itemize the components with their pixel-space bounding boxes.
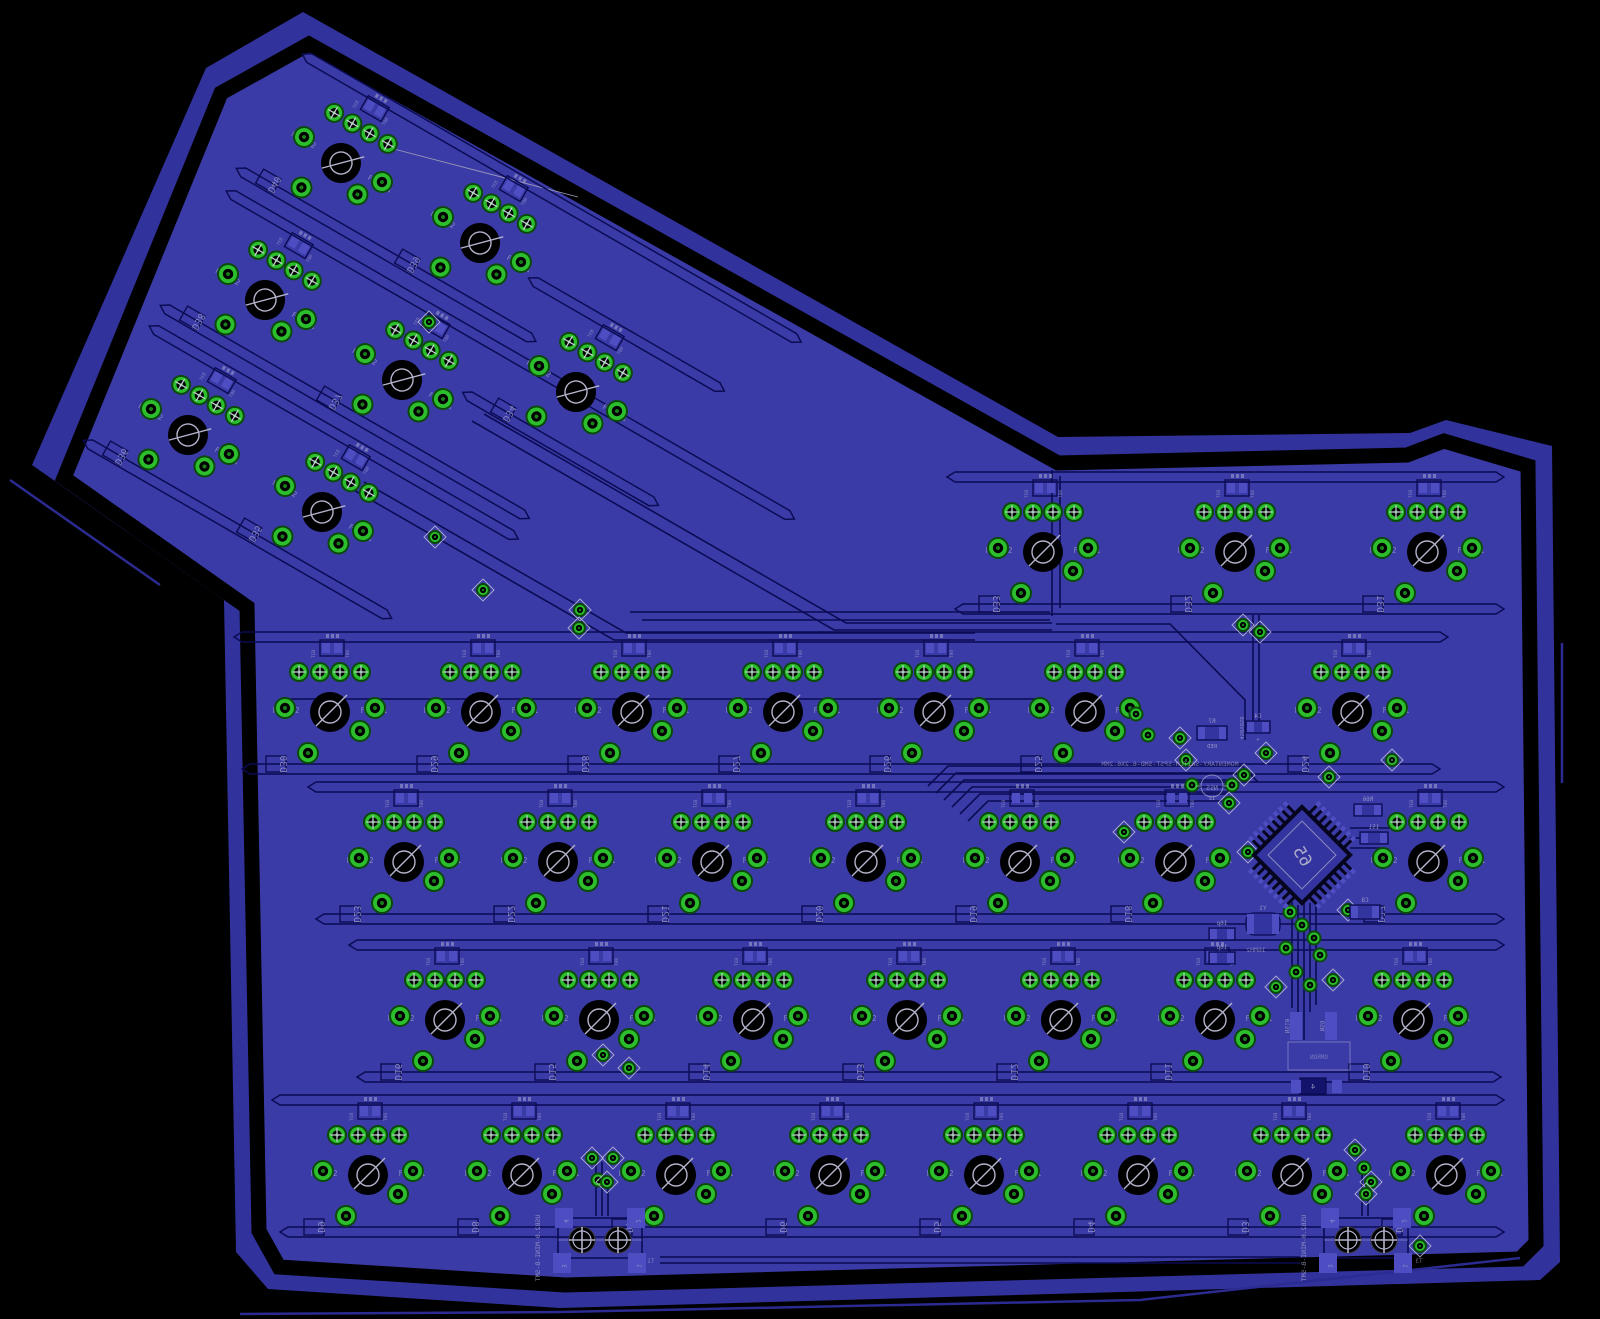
svg-text:D6: D6 [777,1221,788,1233]
svg-text:D32: D32 [1182,595,1193,612]
svg-text:80T: 80T [614,958,620,966]
svg-text:80T: 80T [691,1113,697,1121]
svg-text:80T: 80T [1076,958,1082,966]
svg-text:B3T: B3T [965,1113,971,1121]
svg-text:B3T: B3T [1409,800,1415,808]
svg-text:D26: D26 [881,755,892,772]
svg-text:D10: D10 [1360,1063,1371,1080]
svg-text:16p: 16p [1216,944,1227,951]
svg-text:B3T: B3T [462,650,468,658]
svg-text:D4: D4 [1085,1221,1096,1233]
svg-text:12: 12 [1209,796,1216,802]
svg-text:B3T: B3T [385,800,391,808]
svg-text:B3T: B3T [1001,800,1007,808]
svg-text:B3T: B3T [915,650,921,658]
svg-text:B3T: B3T [1119,1113,1125,1121]
svg-text:B3T: B3T [847,800,853,808]
svg-text:80T: 80T [419,800,425,808]
svg-text:B3T: B3T [1156,800,1162,808]
silkscreen-text: T3 [1415,1258,1423,1265]
svg-text:3: 3 [1326,1264,1333,1268]
svg-text:D23: D23 [351,905,362,922]
svg-text:80T: 80T [537,1113,543,1121]
svg-text:2: 2 [1400,1219,1407,1223]
svg-text:NS10: NS10 [1283,1018,1290,1033]
svg-text:D13: D13 [854,1063,865,1080]
svg-text:80T: 80T [1250,490,1256,498]
svg-text:80T: 80T [573,800,579,808]
svg-text:NS9: NS9 [1318,1020,1325,1031]
svg-text:80T: 80T [999,1113,1005,1121]
svg-text:B3T: B3T [1066,650,1072,658]
svg-text:B3T: B3T [311,650,317,658]
svg-text:D3: D3 [1239,1221,1250,1232]
svg-text:D9: D9 [315,1221,326,1233]
svg-text:D22: D22 [505,905,516,922]
svg-text:MOMENTARY-SWITCH-SPST-SMD-6.2X: MOMENTARY-SWITCH-SPST-SMD-6.2X6.2MM [1101,760,1238,768]
svg-text:80T: 80T [881,800,887,808]
svg-text:D27: D27 [730,755,741,772]
svg-text:D24: D24 [1299,755,1310,772]
svg-text:D29: D29 [428,755,439,772]
svg-text:D25: D25 [1032,755,1043,772]
svg-text:USB2.0-MINI-B-SMT: USB2.0-MINI-B-SMT [534,1215,542,1282]
svg-text:USB2.0-MINI-B-SMT: USB2.0-MINI-B-SMT [1300,1215,1308,1282]
svg-text:B3T: B3T [349,1113,355,1121]
svg-text:B3T: B3T [1273,1113,1279,1121]
svg-text:B3T: B3T [580,958,586,966]
svg-text:D11: D11 [1162,1063,1173,1080]
svg-text:B3T: B3T [1196,958,1202,966]
svg-text:R66: R66 [1362,796,1373,803]
svg-text:D30: D30 [277,755,288,772]
svg-text:80T: 80T [845,1113,851,1121]
svg-text:16MHz: 16MHz [1246,946,1266,954]
svg-text:D20: D20 [813,905,824,922]
svg-text:B3T: B3T [1216,490,1222,498]
svg-text:B3T: B3T [1024,490,1030,498]
svg-text:D21: D21 [659,905,670,922]
svg-text:80T: 80T [460,958,466,966]
svg-text:80T: 80T [1461,1113,1467,1121]
svg-text:D14: D14 [700,1063,711,1080]
svg-text:80T: 80T [798,650,804,658]
svg-text:80T: 80T [383,1113,389,1121]
svg-text:B3T: B3T [539,800,545,808]
svg-text:D31: D31 [1374,595,1385,612]
svg-text:T3: T3 [1415,1258,1423,1265]
svg-text:RED: RED [1207,744,1217,750]
svg-text:D15: D15 [546,1063,557,1080]
silkscreen-text: 450V05B [1238,716,1244,740]
svg-text:D5: D5 [931,1221,942,1232]
svg-text:B3T: B3T [426,958,432,966]
silkscreen-text: 16MHz [1246,946,1266,954]
svg-text:D19: D19 [967,905,978,922]
svg-text:80T: 80T [1035,800,1041,808]
svg-text:80T: 80T [345,650,351,658]
svg-text:80T: 80T [727,800,733,808]
svg-text:2: 2 [634,1219,641,1223]
svg-text:80T: 80T [1443,800,1449,808]
svg-text:4: 4 [1311,1083,1315,1091]
svg-text:80T: 80T [1190,800,1196,808]
svg-text:N55: N55 [1206,784,1218,792]
svg-text:B3T: B3T [693,800,699,808]
svg-text:80T: 80T [1367,650,1373,658]
svg-text:B3T: B3T [764,650,770,658]
svg-text:D8: D8 [469,1221,480,1233]
svg-text:T1: T1 [647,1258,655,1265]
svg-text:C8: C8 [1361,897,1369,904]
svg-text:80T: 80T [1428,958,1434,966]
svg-text:R7: R7 [1208,718,1216,725]
pcb-board: B3T80TD33FXPIN2FXPIN1B3T80TD32FXPIN2FXPI… [0,0,1600,1319]
svg-text:80T: 80T [1100,650,1106,658]
svg-text:1: 1 [1401,1264,1408,1268]
svg-text:D18: D18 [1122,905,1133,922]
svg-text:4: 4 [562,1219,569,1223]
svg-text:80T: 80T [496,650,502,658]
svg-text:B3T: B3T [1394,958,1400,966]
svg-text:80T: 80T [1153,1113,1159,1121]
silkscreen-text: T1 [647,1258,655,1265]
svg-text:80T: 80T [1442,490,1448,498]
svg-text:80T: 80T [1307,1113,1313,1121]
svg-text:80T: 80T [949,650,955,658]
svg-text:D28: D28 [579,755,590,772]
svg-text:3: 3 [560,1264,567,1268]
svg-text:B3T: B3T [1333,650,1339,658]
svg-text:80T: 80T [922,958,928,966]
svg-text:B3T: B3T [811,1113,817,1121]
svg-text:450V05B: 450V05B [1238,716,1244,740]
svg-text:D12: D12 [1008,1063,1019,1080]
svg-text:80T: 80T [647,650,653,658]
svg-text:B3T: B3T [1042,958,1048,966]
svg-text:80T: 80T [1058,490,1064,498]
svg-text:B3T: B3T [1408,490,1414,498]
svg-text:1: 1 [635,1264,642,1268]
pcb-editor-canvas: B3T80TD33FXPIN2FXPIN1B3T80TD32FXPIN2FXPI… [0,0,1600,1319]
silkscreen-text: MOMENTARY-SWITCH-SPST-SMD-6.2X6.2MM [1101,760,1238,768]
svg-text:D33: D33 [990,595,1001,612]
svg-text:OMRON: OMRON [1310,1054,1328,1061]
svg-text:4: 4 [1328,1219,1335,1223]
svg-text:B3T: B3T [734,958,740,966]
svg-text:B3T: B3T [613,650,619,658]
svg-text:B3T: B3T [1427,1113,1433,1121]
svg-text:Y1: Y1 [1259,905,1267,912]
svg-text:80T: 80T [768,958,774,966]
svg-text:B3T: B3T [657,1113,663,1121]
svg-text:B3T: B3T [888,958,894,966]
svg-text:16p: 16p [1216,920,1227,927]
svg-text:C4: C4 [1254,713,1262,720]
svg-text:151: 151 [1368,824,1379,831]
svg-text:D16: D16 [392,1063,403,1080]
svg-text:B3T: B3T [503,1113,509,1121]
